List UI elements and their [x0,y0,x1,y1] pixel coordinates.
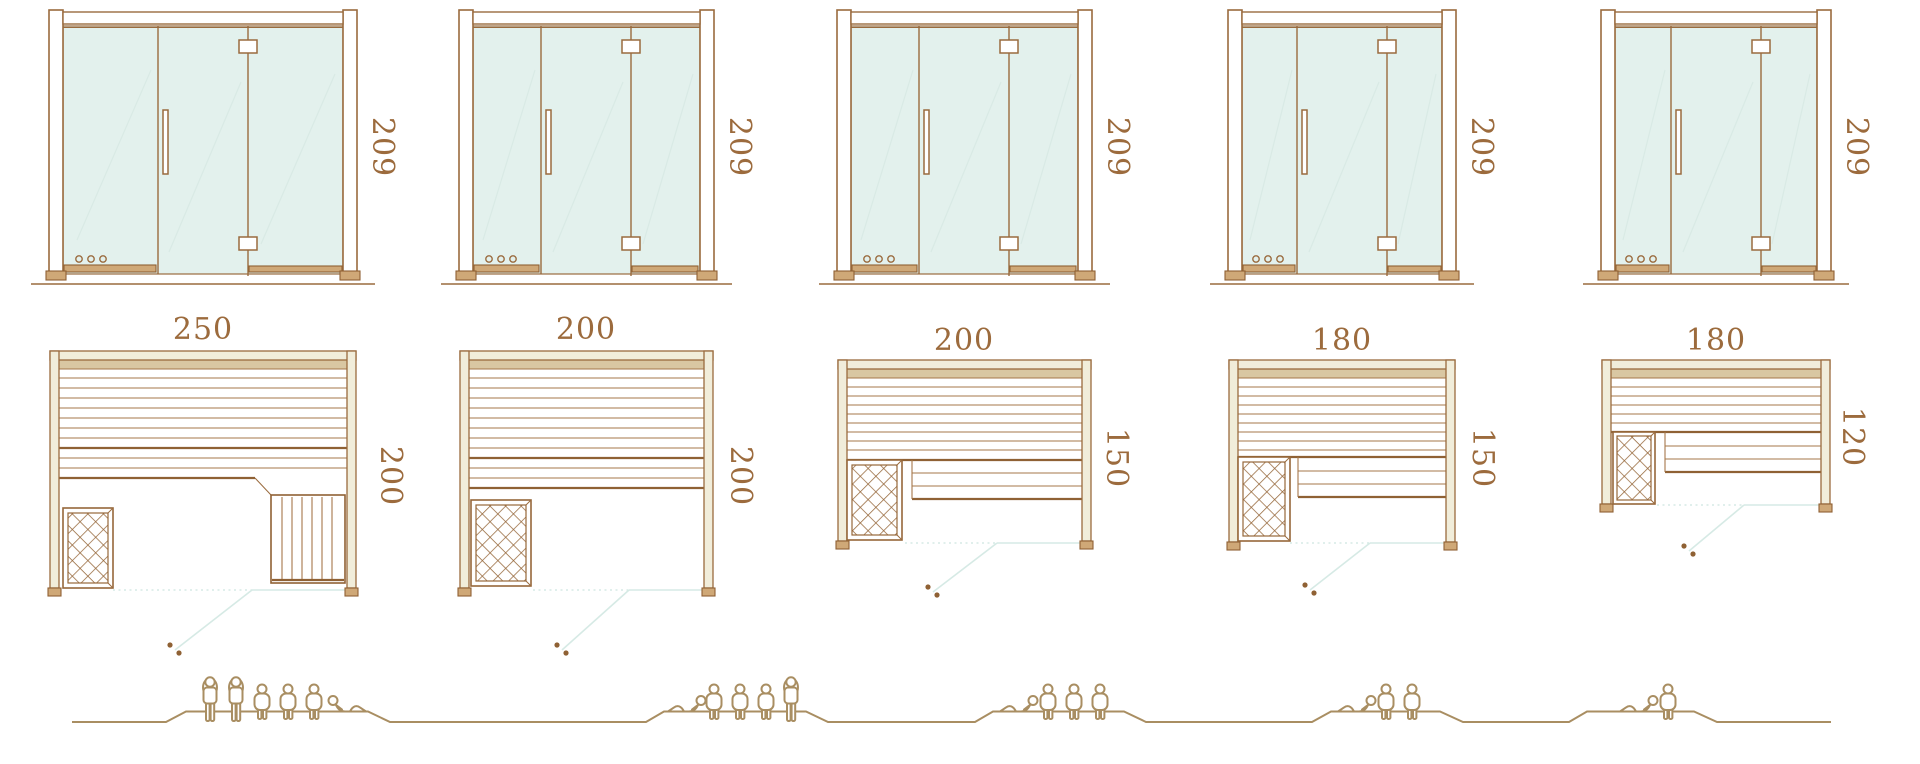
capacity-group-4 [1338,685,1420,720]
floor-plan-5 [1601,359,1831,574]
plan-depth-label: 150 [1467,428,1497,488]
elevation-height-label: 209 [1102,117,1132,177]
plan-width-label: 180 [1686,326,1746,356]
capacity-row [0,640,1920,764]
plan-width-label: 200 [556,315,616,345]
front-elevation-5 [1581,0,1851,292]
elevation-height-label: 209 [1466,117,1496,177]
plan-depth-label: 200 [375,446,405,506]
sauna-size-diagram: 209 250 200 [0,0,1920,764]
elevation-height-label: 209 [724,117,754,177]
plan-depth-label: 200 [725,446,755,506]
elevation-height-label: 209 [1841,117,1871,177]
plan-width-label: 180 [1312,326,1372,356]
plan-width-label: 250 [173,315,233,345]
plan-width-label: 200 [934,326,994,356]
capacity-group-1 [203,677,366,721]
floor-plan-3 [837,359,1092,609]
elevation-height-label: 209 [367,117,397,177]
plan-depth-label: 120 [1837,407,1867,467]
floor-plan-1 [49,350,357,662]
plan-depth-label: 150 [1101,428,1131,488]
capacity-group-3 [1000,685,1108,720]
front-elevation-3 [817,0,1112,292]
floor-plan-4 [1228,359,1456,609]
capacity-group-5 [1620,685,1676,720]
capacity-group-2 [668,677,798,721]
front-elevation-4 [1208,0,1476,292]
floor-plan-2 [459,350,714,662]
front-elevation-2 [439,0,734,292]
front-elevation-1 [29,0,377,292]
